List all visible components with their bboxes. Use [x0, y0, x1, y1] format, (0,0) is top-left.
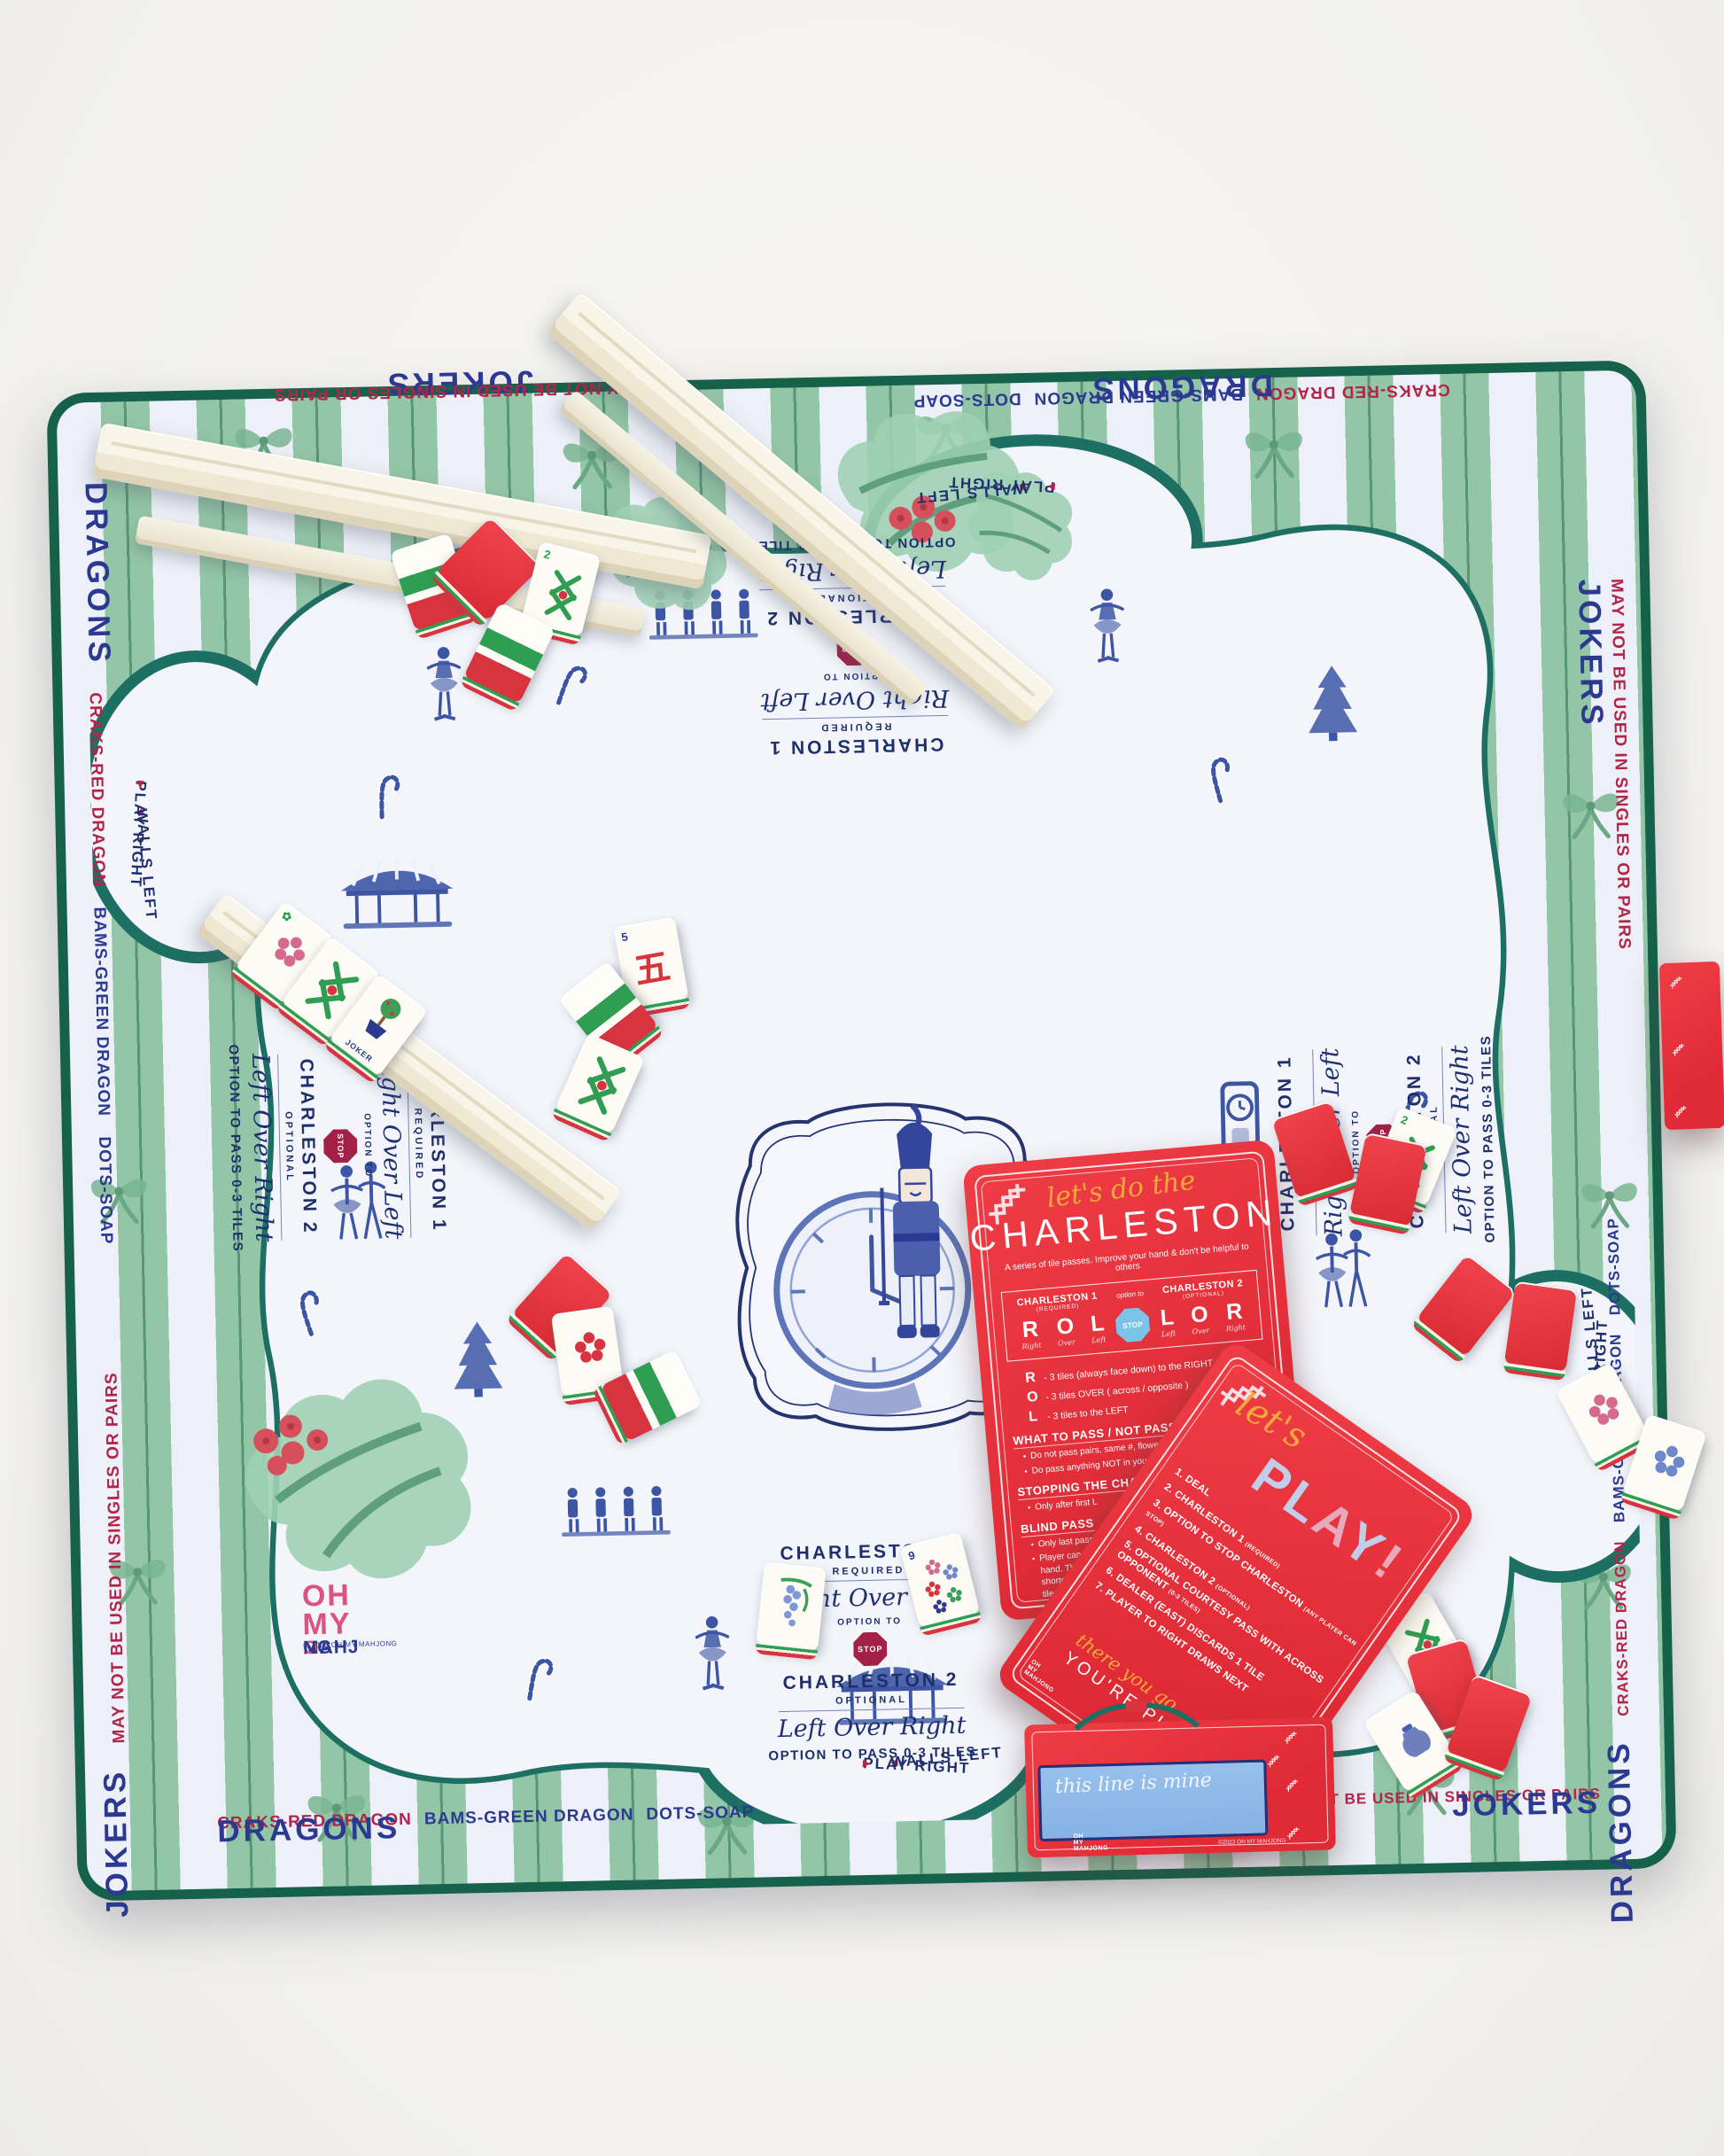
wisteria-flower-tile: [756, 1562, 826, 1652]
name-card-copyright: ©2023 OH MY MAHJONG: [1218, 1838, 1286, 1846]
name-plate-card: this line is mine OHMYMAHJONG ©2023 OH M…: [1024, 1716, 1336, 1857]
red-back-tile: [1416, 1253, 1516, 1357]
name-card-edge: [1659, 961, 1724, 1130]
flower-nine-tile: 9: [900, 1532, 981, 1628]
red-back-tile: [1504, 1281, 1577, 1373]
name-line-strip: this line is mine: [1037, 1759, 1268, 1841]
card-script-header: let's: [1229, 1384, 1314, 1458]
stop-octagon: STOP: [1114, 1307, 1151, 1343]
product-photo-stage: JOKERS MAY NOT BE USED IN SINGLES OR PAI…: [0, 0, 1724, 2156]
name-strip-script: this line is mine: [1054, 1770, 1212, 1799]
red-back-tile: [1271, 1100, 1356, 1198]
oh-my-mahjong-mini-logo: OHMYMAHJONG: [1073, 1833, 1108, 1852]
tile-rack: [547, 292, 1056, 731]
charleston-pass-diagram: CHARLESTON 1(REQUIRED) option to CHARLES…: [1001, 1270, 1263, 1362]
red-back-tile: [1349, 1132, 1427, 1226]
